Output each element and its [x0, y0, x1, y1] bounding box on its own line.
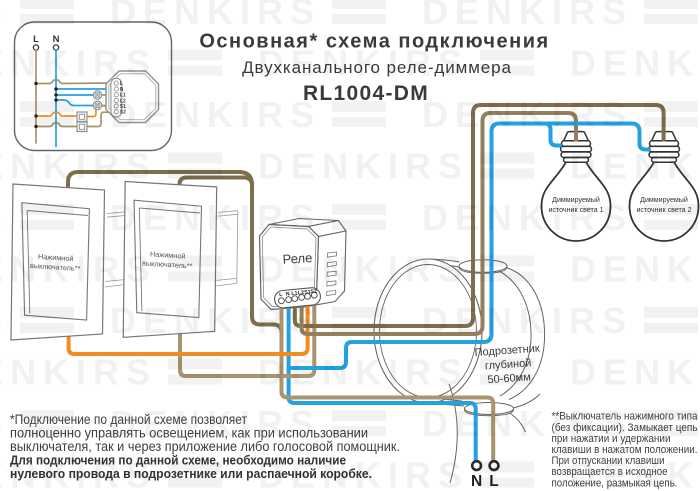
svg-text:DENKIRS: DENKIRS — [110, 403, 321, 444]
svg-text:DENKIRS: DENKIRS — [570, 455, 700, 491]
svg-text:DENKIRS: DENKIRS — [258, 146, 469, 187]
svg-text:DENKIRS: DENKIRS — [110, 300, 321, 341]
svg-text:DENKIRS: DENKIRS — [0, 146, 157, 187]
svg-text:DENKIRS: DENKIRS — [0, 249, 157, 290]
svg-text:DENKIRS: DENKIRS — [570, 249, 700, 290]
svg-text:DENKIRS: DENKIRS — [570, 352, 700, 393]
svg-text:DENKIRS: DENKIRS — [110, 0, 321, 32]
svg-text:DENKIRS: DENKIRS — [422, 300, 633, 341]
svg-text:DENKIRS: DENKIRS — [0, 43, 157, 84]
svg-text:DENKIRS: DENKIRS — [258, 249, 469, 290]
svg-text:DENKIRS: DENKIRS — [258, 352, 469, 393]
svg-text:N: N — [286, 291, 291, 297]
svg-text:DENKIRS: DENKIRS — [0, 94, 9, 135]
svg-text:DENKIRS: DENKIRS — [0, 197, 9, 238]
svg-text:DENKIRS: DENKIRS — [0, 455, 157, 491]
svg-text:DENKIRS: DENKIRS — [258, 43, 469, 84]
svg-text:S2: S2 — [310, 289, 317, 296]
svg-text:DENKIRS: DENKIRS — [0, 0, 9, 32]
svg-text:DENKIRS: DENKIRS — [110, 197, 321, 238]
svg-text:DENKIRS: DENKIRS — [0, 352, 157, 393]
svg-text:DENKIRS: DENKIRS — [570, 146, 700, 187]
svg-text:DENKIRS: DENKIRS — [110, 94, 321, 135]
svg-text:DENKIRS: DENKIRS — [422, 94, 633, 135]
svg-text:DENKIRS: DENKIRS — [422, 403, 633, 444]
svg-text:DENKIRS: DENKIRS — [0, 403, 9, 444]
svg-text:DENKIRS: DENKIRS — [422, 0, 633, 32]
svg-text:Диммируемый: Диммируемый — [640, 196, 688, 204]
svg-text:DENKIRS: DENKIRS — [258, 455, 469, 491]
svg-text:DENKIRS: DENKIRS — [570, 43, 700, 84]
svg-text:DENKIRS: DENKIRS — [0, 300, 9, 341]
svg-text:DENKIRS: DENKIRS — [422, 197, 633, 238]
